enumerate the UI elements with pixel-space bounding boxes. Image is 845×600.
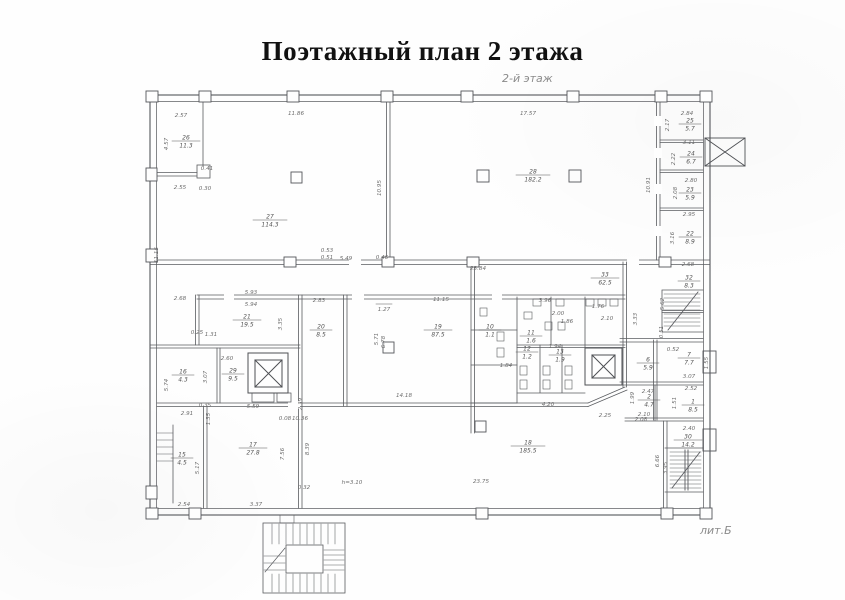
svg-text:11.15: 11.15 [433, 297, 449, 303]
svg-text:11.86: 11.86 [288, 111, 304, 117]
svg-text:5.94: 5.94 [245, 302, 258, 308]
svg-text:2.17: 2.17 [665, 118, 671, 131]
svg-text:5.9: 5.9 [643, 365, 653, 372]
svg-text:2.68: 2.68 [682, 262, 695, 268]
svg-text:21: 21 [243, 314, 251, 321]
svg-text:2.22: 2.22 [671, 152, 677, 165]
svg-text:2.08: 2.08 [673, 186, 679, 199]
svg-text:1.76: 1.76 [592, 304, 605, 310]
svg-text:23.84: 23.84 [470, 266, 486, 272]
svg-text:5.9: 5.9 [685, 195, 695, 202]
svg-text:2.91: 2.91 [181, 411, 193, 417]
interior-walls [150, 102, 710, 508]
svg-text:10.91: 10.91 [646, 177, 652, 193]
svg-text:2.57: 2.57 [175, 113, 188, 119]
svg-text:15: 15 [178, 452, 186, 459]
svg-text:8.9: 8.9 [685, 239, 695, 246]
svg-text:28: 28 [529, 169, 537, 176]
svg-text:3.33: 3.33 [633, 312, 639, 325]
svg-text:0.35: 0.35 [199, 403, 212, 409]
svg-text:30: 30 [684, 434, 692, 441]
svg-text:1.6: 1.6 [526, 338, 536, 345]
svg-text:32: 32 [685, 275, 693, 282]
svg-text:22: 22 [686, 231, 694, 238]
svg-text:1.27: 1.27 [378, 307, 391, 313]
svg-text:2.55: 2.55 [174, 185, 187, 191]
svg-text:1.51: 1.51 [672, 397, 678, 409]
svg-text:0.52: 0.52 [667, 347, 680, 353]
svg-text:2.40: 2.40 [683, 426, 696, 432]
svg-text:25: 25 [686, 118, 694, 125]
svg-text:185.5: 185.5 [519, 448, 536, 455]
svg-text:5.17: 5.17 [195, 461, 201, 474]
svg-text:8.3: 8.3 [684, 283, 694, 290]
svg-text:62.5: 62.5 [598, 280, 612, 287]
svg-text:0.32: 0.32 [298, 485, 311, 491]
svg-text:3.11: 3.11 [683, 140, 695, 146]
svg-text:1.35: 1.35 [206, 412, 212, 425]
svg-text:1.86: 1.86 [561, 319, 574, 325]
svg-text:1.31: 1.31 [205, 332, 217, 338]
svg-text:6.66: 6.66 [655, 454, 661, 467]
outer-walls [150, 95, 710, 515]
svg-text:114.3: 114.3 [261, 222, 278, 229]
svg-text:27: 27 [266, 214, 274, 221]
svg-text:2: 2 [647, 394, 651, 401]
svg-text:2.25: 2.25 [599, 413, 612, 419]
svg-text:2.84: 2.84 [681, 111, 694, 117]
svg-text:4.7: 4.7 [644, 402, 654, 409]
svg-text:11.15: 11.15 [154, 247, 160, 263]
svg-text:3.37: 3.37 [250, 502, 263, 508]
svg-text:23.75: 23.75 [473, 479, 489, 485]
svg-text:2.52: 2.52 [685, 386, 698, 392]
svg-text:17.57: 17.57 [520, 111, 536, 117]
svg-text:17: 17 [249, 442, 257, 449]
svg-text:1.1: 1.1 [485, 332, 495, 339]
svg-text:2.54: 2.54 [178, 502, 191, 508]
svg-text:5.49: 5.49 [340, 256, 353, 262]
svg-text:19.5: 19.5 [240, 322, 254, 329]
svg-text:8.5: 8.5 [688, 407, 698, 414]
elevator-shaft-right [585, 348, 622, 385]
svg-text:3.16: 3.16 [670, 231, 676, 244]
svg-text:1.2: 1.2 [522, 354, 532, 361]
svg-text:13: 13 [556, 349, 564, 356]
svg-text:2.00: 2.00 [552, 311, 565, 317]
svg-text:0.30: 0.30 [199, 186, 212, 192]
svg-text:0.08: 0.08 [279, 416, 292, 422]
svg-text:0.46: 0.46 [376, 255, 389, 261]
svg-text:10.36: 10.36 [292, 416, 308, 422]
svg-text:14.18: 14.18 [396, 393, 412, 399]
svg-text:20: 20 [317, 324, 325, 331]
svg-text:3.07: 3.07 [203, 370, 209, 383]
svg-text:182.2: 182.2 [524, 177, 541, 184]
svg-text:3.95: 3.95 [663, 461, 669, 474]
svg-text:12: 12 [523, 346, 531, 353]
svg-text:0.51: 0.51 [321, 255, 333, 261]
svg-text:4.57: 4.57 [164, 137, 170, 150]
svg-text:2.60: 2.60 [221, 356, 234, 362]
svg-text:10: 10 [486, 324, 494, 331]
svg-text:2.10: 2.10 [601, 316, 614, 322]
svg-text:3.96: 3.96 [539, 298, 552, 304]
svg-text:0.51: 0.51 [659, 326, 665, 338]
svg-text:26: 26 [182, 135, 190, 142]
svg-text:5.59: 5.59 [247, 404, 260, 410]
elevator-shaft-exterior [705, 138, 745, 166]
svg-text:7.7: 7.7 [684, 360, 694, 367]
svg-text:14.2: 14.2 [681, 442, 695, 449]
svg-text:16: 16 [179, 369, 187, 376]
svg-text:h=3.10: h=3.10 [342, 480, 363, 486]
svg-text:87.5: 87.5 [431, 332, 445, 339]
svg-text:2.83: 2.83 [313, 298, 326, 304]
svg-text:5.62: 5.62 [660, 297, 666, 310]
floor-plan-drawing: 2.5711.8617.572.842.173.112.222.802.082.… [0, 0, 845, 600]
svg-text:0.53: 0.53 [321, 248, 334, 254]
svg-text:24: 24 [687, 151, 695, 158]
svg-text:7.56: 7.56 [280, 447, 286, 460]
svg-text:0.25: 0.25 [191, 330, 204, 336]
staircase-exterior-bottom [263, 515, 345, 593]
svg-text:1: 1 [691, 399, 695, 406]
svg-text:19: 19 [434, 324, 442, 331]
svg-text:33: 33 [601, 272, 609, 279]
svg-text:5.7: 5.7 [685, 126, 695, 133]
staircase-right-middle [662, 292, 703, 330]
svg-text:0.41: 0.41 [201, 166, 213, 172]
svg-text:1.55: 1.55 [704, 356, 710, 369]
wall-columns [146, 91, 712, 519]
svg-text:2.39: 2.39 [298, 397, 304, 410]
svg-text:5.93: 5.93 [245, 290, 258, 296]
svg-text:4.20: 4.20 [542, 402, 555, 408]
staircase-bottom-right [670, 450, 701, 490]
svg-text:5.74: 5.74 [164, 378, 170, 391]
svg-text:5.71: 5.71 [374, 333, 380, 345]
svg-text:7: 7 [687, 352, 691, 359]
svg-text:1.9: 1.9 [555, 357, 565, 364]
svg-text:29: 29 [229, 368, 237, 375]
svg-text:23: 23 [686, 187, 694, 194]
svg-text:27.8: 27.8 [246, 450, 260, 457]
svg-text:1.84: 1.84 [500, 363, 513, 369]
svg-text:2.95: 2.95 [683, 212, 696, 218]
svg-text:4.5: 4.5 [177, 460, 187, 467]
svg-text:2.68: 2.68 [174, 296, 187, 302]
svg-text:18: 18 [524, 440, 532, 447]
svg-text:6.7: 6.7 [686, 159, 696, 166]
svg-text:4.3: 4.3 [178, 377, 188, 384]
svg-text:2.80: 2.80 [685, 178, 698, 184]
svg-text:3.35: 3.35 [278, 317, 284, 330]
svg-text:10.95: 10.95 [377, 180, 383, 196]
elevator-shaft-left [248, 353, 291, 402]
svg-text:6: 6 [646, 357, 650, 364]
svg-text:11.3: 11.3 [179, 143, 193, 150]
svg-text:2.08: 2.08 [635, 417, 648, 423]
svg-text:8.5: 8.5 [316, 332, 326, 339]
svg-text:3.07: 3.07 [683, 374, 696, 380]
svg-text:1.99: 1.99 [630, 391, 636, 404]
svg-text:8.39: 8.39 [305, 442, 311, 455]
svg-text:9.5: 9.5 [228, 376, 238, 383]
svg-text:11: 11 [527, 330, 535, 337]
svg-text:6.78: 6.78 [381, 335, 387, 348]
scanned-floor-plan-page: Поэтажный план 2 этажа 2-й этаж лит.Б [0, 0, 845, 600]
